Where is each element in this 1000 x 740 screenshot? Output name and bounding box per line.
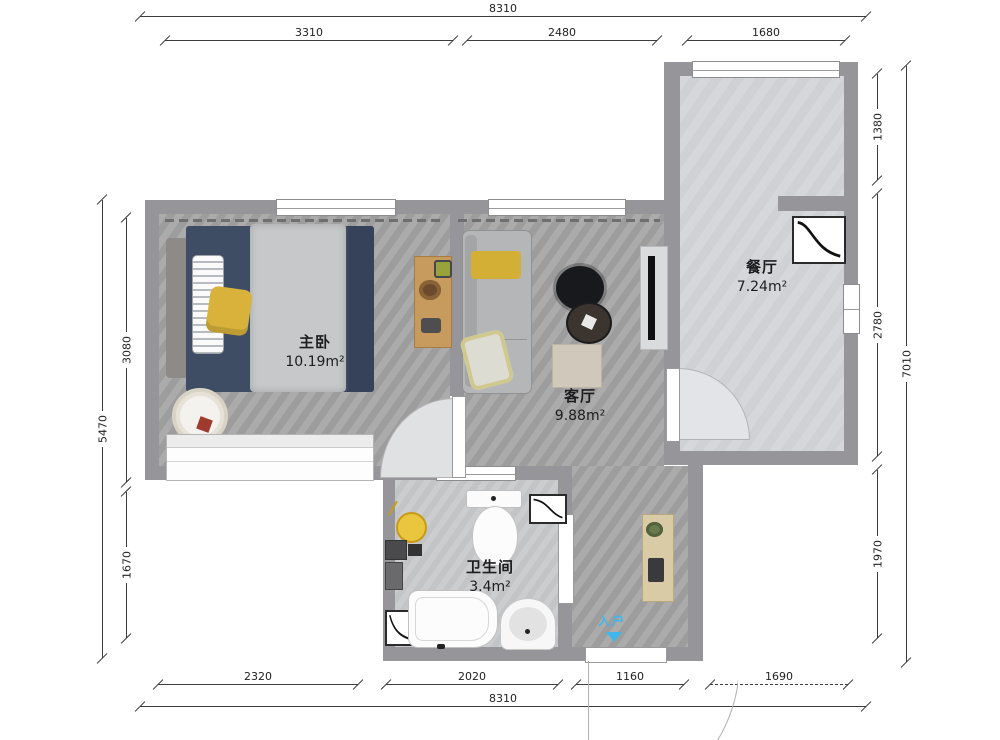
entry-door-swing-arc: [588, 661, 738, 740]
dim-bottom-total: 8310: [140, 706, 866, 707]
dim-tick: [861, 11, 872, 22]
dim-label: 3310: [291, 26, 327, 39]
bathtub-inner: [415, 597, 489, 641]
wardrobe-top-strip: [167, 435, 373, 448]
dim-tick: [901, 60, 912, 71]
dim-left-seg-1670: 1670: [126, 492, 127, 638]
entry-label: 入户: [598, 612, 626, 629]
bathroom-sink: [500, 598, 556, 650]
wall-hallway-right: [688, 465, 703, 661]
sink-drain: [525, 629, 530, 634]
dim-tick: [381, 679, 392, 690]
dim-tick: [571, 679, 582, 690]
console-decor: [648, 558, 664, 582]
bathroom-area: 3.4m²: [430, 579, 550, 595]
sofa: [462, 230, 532, 394]
dim-tick: [872, 464, 883, 475]
floorplan-page: { "plan": { "rooms": [ {"name": "主卧", "a…: [0, 0, 1000, 740]
living-area: 9.88m²: [520, 408, 640, 424]
dim-label: 1970: [872, 536, 885, 572]
living-curtain-rail: [458, 219, 660, 222]
dining-name: 餐厅: [702, 256, 822, 277]
bedroom-door-leaf: [452, 396, 466, 478]
dim-top-total: 8310: [140, 16, 866, 17]
bathroom-name: 卫生间: [430, 556, 550, 577]
dim-tick: [135, 11, 146, 22]
sofa-pillow-yellow: [471, 251, 521, 279]
dim-top-total-label: 8310: [485, 2, 521, 15]
entry-door-leaf-line: [588, 661, 589, 740]
bedroom-window: [276, 199, 396, 216]
bedroom-curtain-rail: [165, 219, 445, 222]
dim-tick: [121, 212, 132, 223]
bathtub-drain: [437, 644, 445, 649]
dim-tick: [652, 35, 663, 46]
dim-label: 2320: [240, 670, 276, 683]
dim-right-seg-1380: 1380: [877, 74, 878, 180]
dim-label: 3080: [121, 332, 134, 368]
room-label-living: 客厅 9.88m²: [520, 385, 640, 424]
fixture-symbol-bathroom-tr: [529, 494, 567, 524]
bathroom-shelf-2: [385, 562, 403, 590]
dim-top-seg-2480: 2480: [467, 40, 657, 41]
dim-tick: [901, 657, 912, 668]
dim-left-total: 5470: [102, 200, 103, 658]
dim-tick: [160, 35, 171, 46]
dim-tick: [872, 68, 883, 79]
dim-label: 1380: [872, 109, 885, 145]
wall-dining-stub: [778, 196, 844, 211]
dim-tick: [872, 188, 883, 199]
desk-plant: [419, 280, 441, 300]
dim-left-seg-3080: 3080: [126, 218, 127, 482]
bed-headboard: [166, 238, 188, 378]
dim-tick: [121, 633, 132, 644]
bathroom-door-leaf: [558, 514, 574, 604]
dim-bottom-seg-2320: 2320: [158, 684, 358, 685]
wall-dining-bottom: [680, 451, 858, 465]
entry-arrow-icon: [606, 632, 622, 642]
wall-left-main: [145, 200, 159, 480]
dim-bottom-seg-2020: 2020: [386, 684, 558, 685]
tv-icon: [648, 256, 655, 340]
dim-right-total-label: 7010: [901, 346, 914, 382]
dining-side-window: [843, 284, 860, 334]
bathtub: [408, 590, 498, 648]
toilet-button: [491, 496, 496, 501]
bathroom-stool: [408, 544, 422, 556]
dim-label: 2020: [454, 670, 490, 683]
dim-tick: [553, 679, 564, 690]
dim-tick: [682, 35, 693, 46]
dim-tick: [153, 679, 164, 690]
laundry-lamp: [396, 512, 427, 543]
dim-tick: [843, 679, 854, 690]
dim-label: 1670: [121, 547, 134, 583]
console-plant: [646, 522, 663, 537]
dim-tick: [840, 35, 851, 46]
sink-bowl: [509, 607, 547, 641]
desk-chair: [421, 318, 441, 333]
wardrobe-divider: [167, 461, 373, 462]
entry-door-swing-clip: [588, 661, 738, 740]
room-label-dining: 餐厅 7.24m²: [702, 256, 822, 295]
dim-right-seg-2780: 2780: [877, 194, 878, 456]
dim-top-seg-1680: 1680: [687, 40, 845, 41]
dim-tick: [872, 175, 883, 186]
dim-tick: [135, 701, 146, 712]
bedroom-name: 主卧: [255, 331, 375, 352]
desk-lamp: [434, 260, 452, 278]
dim-tick: [872, 633, 883, 644]
dining-door-leaf: [666, 368, 680, 442]
dim-left-total-label: 5470: [97, 411, 110, 447]
dim-label: 2480: [544, 26, 580, 39]
room-label-bathroom: 卫生间 3.4m²: [430, 556, 550, 595]
dining-room-window: [692, 61, 840, 78]
dim-label: 2780: [872, 307, 885, 343]
wardrobe: [166, 434, 374, 481]
dim-label: 1690: [761, 670, 797, 683]
dining-area: 7.24m²: [702, 279, 822, 295]
living-rug: [552, 344, 602, 388]
living-name: 客厅: [520, 385, 640, 406]
dim-bottom-total-label: 8310: [485, 692, 521, 705]
dim-tick: [861, 701, 872, 712]
dim-tick: [97, 653, 108, 664]
dim-tick: [353, 679, 364, 690]
dim-right-total: 7010: [906, 66, 907, 662]
room-label-bedroom: 主卧 10.19m²: [255, 331, 375, 370]
dim-tick: [448, 35, 459, 46]
dim-tick: [121, 486, 132, 497]
dim-right-seg-1970: 1970: [877, 470, 878, 638]
bed-pillow-yellow: [205, 285, 253, 336]
wall-dining-right: [844, 62, 858, 465]
dim-tick: [872, 451, 883, 462]
dim-tick: [462, 35, 473, 46]
living-room-window: [488, 199, 626, 216]
bathroom-shelf-1: [385, 540, 407, 560]
dim-label: 1680: [748, 26, 784, 39]
bedroom-area: 10.19m²: [255, 354, 375, 370]
dim-top-seg-3310: 3310: [165, 40, 453, 41]
dim-tick: [97, 194, 108, 205]
